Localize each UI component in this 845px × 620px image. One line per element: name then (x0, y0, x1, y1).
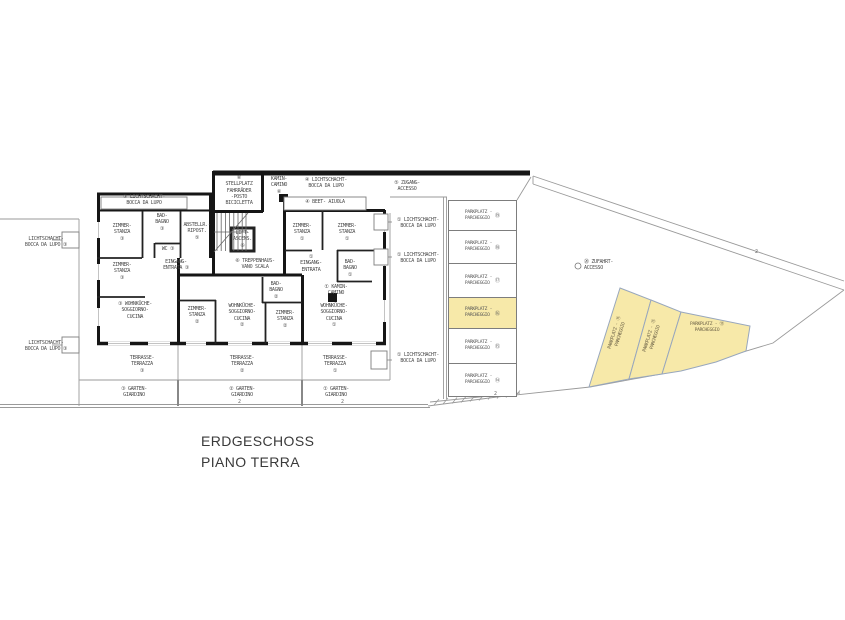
label-wc3: WC ③ (155, 246, 181, 252)
boundary-mark-1: 2 (755, 249, 758, 255)
label-lichtschacht-top: ③ LICHTSCHACHT- BOCCA DA LUPO (100, 194, 188, 207)
parking-stall-15-number: ⑮ (495, 343, 500, 350)
label-bad1: BAD- BAGNO ① (336, 259, 364, 278)
parking-stall-18: PARKPLATZ - PARCHEGGIO ⑱ (449, 231, 516, 264)
boundary-mark-3: 2 (238, 399, 241, 405)
label-kamin-top: KAMIN- CAMINO ⑥ (266, 176, 292, 195)
label-zimmer2a: ZIMMER- STANZA ② (180, 306, 214, 325)
zufahrt-marker-circle (575, 263, 581, 269)
label-kamin1: ① KAMIN- CAMINO (316, 284, 356, 297)
label-stellplatz-fahrraeder: ⑥ STELLPLATZ FAHRRÄDER -POSTO BICICLETTA (216, 175, 262, 206)
drawing-title-line2: PIANO TERRA (201, 454, 300, 470)
floorplan-page: ③ LICHTSCHACHT- BOCCA DA LUPO ⑥ STELLPLA… (0, 0, 845, 620)
label-lichtschacht-left2: LICHTSCHACHT- BOCCA DA LUPO ③ (14, 340, 78, 353)
boundary-mark-4: 2 (341, 399, 344, 405)
label-abstellraum: ABSTELLR.- RIPOST. ⑤ (181, 222, 213, 241)
label-lichtschacht-left1: LICHTSCHACHT- BOCCA DA LUPO ③ (14, 236, 78, 249)
parking-stall-19-label: PARKPLATZ - PARCHEGGIO (465, 210, 492, 221)
label-wohnkueche3: ③ WOHNKÜCHE- SOGGIORNO- CUCINA (104, 301, 166, 320)
label-garten3: ③ GARTEN- GIARDINO (110, 386, 158, 399)
parking-column: PARKPLATZ - PARCHEGGIO ⑲ PARKPLATZ - PAR… (448, 200, 517, 397)
label-lichtschacht-right2: ① LICHTSCHACHT- BOCCA DA LUPO (392, 252, 444, 265)
parking-stall-16-label: PARKPLATZ - PARCHEGGIO (465, 307, 492, 318)
parking-stall-16-number: ⑯ (495, 310, 500, 317)
parking-stall-14-label: PARKPLATZ - PARCHEGGIO (465, 374, 492, 385)
label-bad3: BAD- BAGNO ③ (148, 213, 176, 232)
label-zimmer3b: ZIMMER- STANZA ③ (102, 262, 142, 281)
parking-stall-17-number: ⑰ (495, 277, 500, 284)
drawing-title-line1: ERDGESCHOSS (201, 433, 314, 449)
label-lichtschacht-right1: ① LICHTSCHACHT- BOCCA DA LUPO (392, 217, 444, 230)
label-zimmer2b: ZIMMER- STANZA ② (268, 310, 302, 329)
label-zimmer1b: ZIMMER- STANZA ① (329, 223, 365, 242)
label-zufahrt-accesso: ⑳ ZUFAHRT- ACCESSO (584, 259, 636, 272)
parking-stall-18-label: PARKPLATZ - PARCHEGGIO (465, 241, 492, 252)
label-zugang-accesso: ⑤ ZUGANG- ACCESSO (382, 180, 432, 193)
parking-stall-14: PARKPLATZ - PARCHEGGIO ⑭ (449, 364, 516, 396)
label-zimmer1a: ZIMMER- STANZA ① (284, 223, 320, 242)
drawing-title: ERDGESCHOSS PIANO TERRA (201, 431, 314, 473)
parking-stall-19: PARKPLATZ - PARCHEGGIO ⑲ (449, 201, 516, 231)
parking-stall-17: PARKPLATZ - PARCHEGGIO ⑰ (449, 264, 516, 298)
parking-stall-13-label: PARKPLATZ - ⑬ PARCHEGGIO (678, 322, 736, 333)
label-wohnkueche2: WOHNKÜCHE- SOGGIORNO- CUCINA ② (221, 303, 263, 328)
label-beet-aiuola: ④ BEET- AIUOLA (287, 199, 363, 205)
parking-stall-15: PARKPLATZ - PARCHEGGIO ⑮ (449, 329, 516, 364)
boundary-mark-2: 2 (494, 391, 497, 397)
label-wohnkueche1: WOHNKÜCHE- SOGGIORNO- CUCINA ① (312, 303, 356, 328)
label-eingang1: ① EINGANG- ENTRATA (296, 254, 326, 273)
label-treppenhaus: ⑥ TREPPENHAUS- VANO SCALA (216, 258, 294, 271)
label-lichtschacht-right3: ① LICHTSCHACHT- BOCCA DA LUPO (392, 352, 444, 365)
parking-stall-15-label: PARKPLATZ - PARCHEGGIO (465, 340, 492, 351)
label-eingang3: EINGANG- ENTRATA ③ (150, 259, 202, 272)
label-terrasse3: TERRASSE- TERRAZZA ③ (122, 355, 162, 374)
label-garten1: ① GARTEN- GIARDINO (312, 386, 360, 399)
label-lift: LIFT- ASCENS. ⑥ (229, 230, 256, 249)
label-bad2: BAD- BAGNO ② (262, 281, 290, 300)
label-terrasse1: TERRASSE- TERRAZZA ① (315, 355, 355, 374)
parking-stall-17-label: PARKPLATZ - PARCHEGGIO (465, 275, 492, 286)
label-garten2: ② GARTEN- GIARDINO (218, 386, 266, 399)
label-lichtschacht-top2: ④ LICHTSCHACHT- BOCCA DA LUPO (295, 177, 357, 190)
parking-stall-18-number: ⑱ (495, 244, 500, 251)
label-zimmer3a: ZIMMER- STANZA ③ (102, 223, 142, 242)
parking-stall-16-highlighted: PARKPLATZ - PARCHEGGIO ⑯ (449, 298, 516, 329)
parking-stall-19-number: ⑲ (495, 212, 500, 219)
label-terrasse2: TERRASSE- TERRAZZA ② (222, 355, 262, 374)
parking-stall-14-number: ⑭ (495, 377, 500, 384)
